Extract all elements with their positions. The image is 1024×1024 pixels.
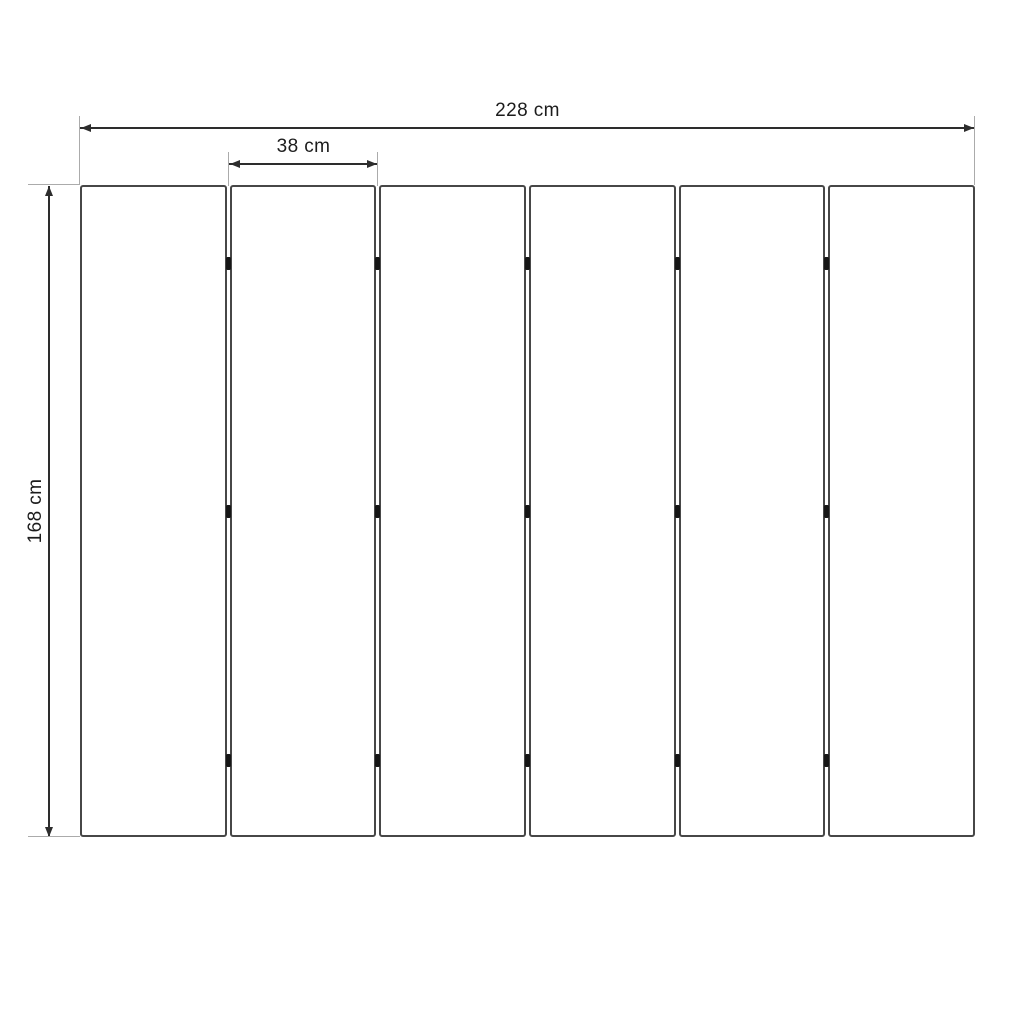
panel-diagram: 228 cm 38 cm 168 cm xyxy=(0,0,1024,1024)
arrowhead-right-icon xyxy=(964,124,974,132)
panel-3 xyxy=(379,185,526,837)
hinge-mark xyxy=(226,257,231,270)
extension-line-left-edge xyxy=(79,116,80,185)
hinge-mark xyxy=(226,754,231,767)
hinge-mark xyxy=(675,754,680,767)
arrowhead-left-icon xyxy=(81,124,91,132)
hinge-mark xyxy=(375,505,380,518)
dimension-line-panel-width xyxy=(229,163,378,165)
panel-2 xyxy=(230,185,377,837)
extension-line-right-edge xyxy=(974,116,975,185)
dimension-line-total-width xyxy=(80,127,975,129)
dimension-label-height: 168 cm xyxy=(25,479,47,544)
dimension-line-height xyxy=(48,186,50,836)
panel-4 xyxy=(529,185,676,837)
hinge-mark xyxy=(226,505,231,518)
panel-1 xyxy=(80,185,227,837)
extension-line-panel-left xyxy=(228,152,229,186)
hinge-mark xyxy=(525,505,530,518)
panel-5 xyxy=(679,185,826,837)
extension-line-top-edge xyxy=(28,184,80,185)
extension-line-bottom-edge xyxy=(28,836,80,837)
hinge-mark xyxy=(824,505,829,518)
hinge-mark xyxy=(525,257,530,270)
hinge-mark xyxy=(824,257,829,270)
extension-line-panel-right xyxy=(377,152,378,186)
panel-6 xyxy=(828,185,975,837)
panel-row xyxy=(80,185,975,837)
hinge-mark xyxy=(525,754,530,767)
arrowhead-up-icon xyxy=(45,186,53,196)
hinge-mark xyxy=(675,257,680,270)
arrowhead-left-icon xyxy=(230,160,240,168)
hinge-mark xyxy=(675,505,680,518)
hinge-mark xyxy=(375,257,380,270)
arrowhead-right-icon xyxy=(367,160,377,168)
dimension-label-total-width: 228 cm xyxy=(80,100,975,122)
dimension-label-panel-width: 38 cm xyxy=(229,136,378,158)
hinge-mark xyxy=(375,754,380,767)
hinge-mark xyxy=(824,754,829,767)
